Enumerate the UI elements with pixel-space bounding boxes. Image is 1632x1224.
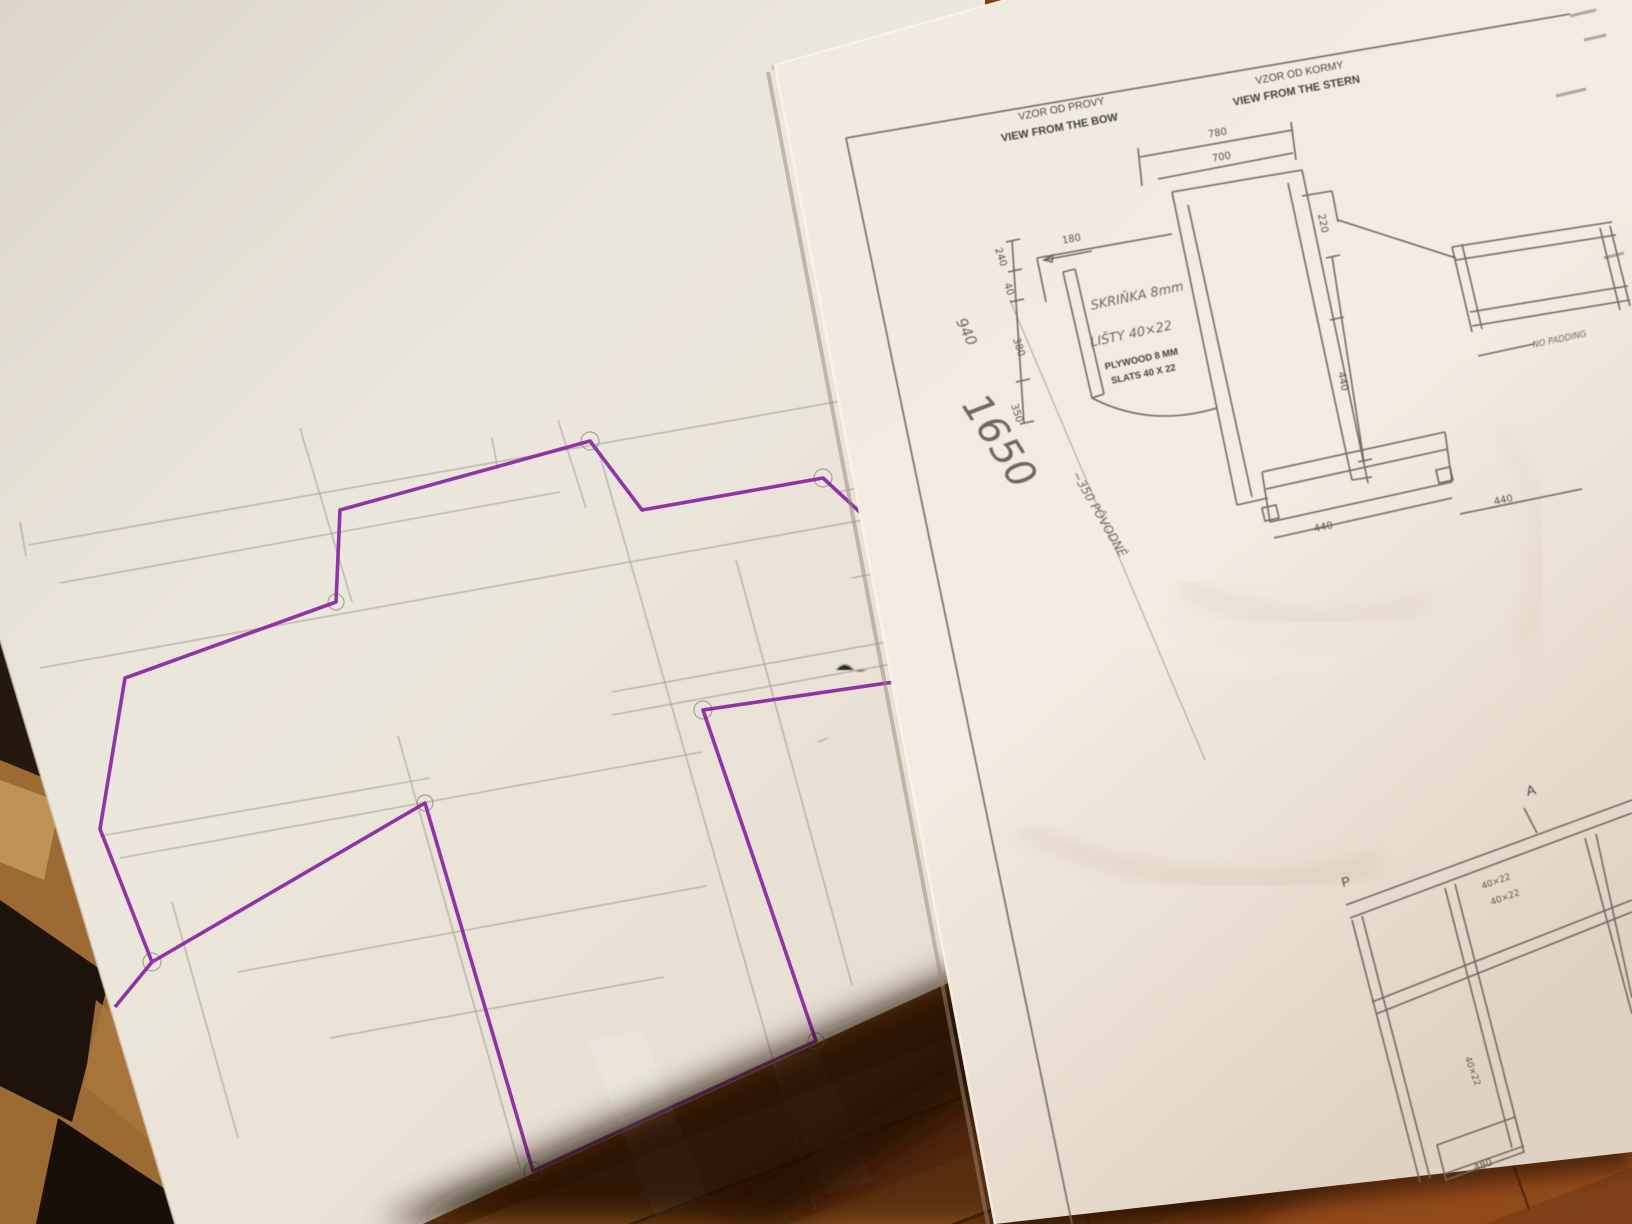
scene-svg: VZOR OD PROVY VIEW FROM THE BOW VZOR OD … <box>0 0 1632 1224</box>
photo-scene: VZOR OD PROVY VIEW FROM THE BOW VZOR OD … <box>0 0 1632 1224</box>
